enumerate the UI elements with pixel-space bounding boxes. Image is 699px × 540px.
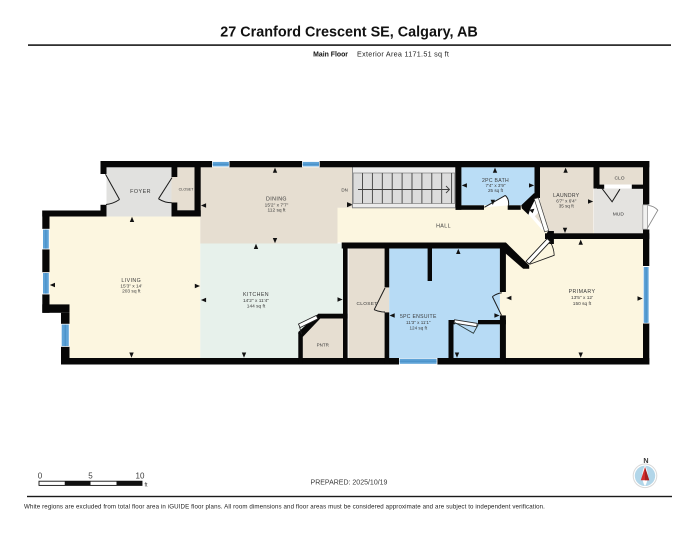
svg-text:FOYER: FOYER	[130, 189, 151, 195]
svg-text:13'5" x 12': 13'5" x 12'	[571, 295, 593, 301]
svg-text:15'2" x 7'7": 15'2" x 7'7"	[265, 202, 289, 208]
svg-text:PNTR: PNTR	[317, 343, 330, 348]
svg-text:Exterior Area 1171.51 sq ft: Exterior Area 1171.51 sq ft	[357, 49, 449, 58]
svg-text:15'3" x 14': 15'3" x 14'	[120, 283, 142, 289]
svg-text:10: 10	[136, 472, 145, 481]
svg-text:PREPARED: 2025/10/19: PREPARED: 2025/10/19	[311, 480, 388, 487]
svg-text:PRIMARY: PRIMARY	[569, 289, 596, 295]
svg-text:35 sq ft: 35 sq ft	[559, 203, 575, 208]
svg-text:DINING: DINING	[266, 197, 287, 203]
svg-text:25 sq ft: 25 sq ft	[488, 188, 504, 193]
svg-text:N: N	[643, 456, 648, 465]
svg-text:0: 0	[38, 472, 43, 481]
svg-text:124 sq ft: 124 sq ft	[409, 326, 427, 331]
svg-text:White regions are excluded fro: White regions are excluded from total fl…	[24, 504, 545, 511]
svg-text:CLOSET: CLOSET	[179, 187, 195, 191]
svg-text:144 sq ft: 144 sq ft	[247, 304, 266, 310]
svg-text:KITCHEN: KITCHEN	[243, 292, 269, 298]
svg-text:MUD: MUD	[613, 212, 625, 218]
svg-text:14'2" x 11'4": 14'2" x 11'4"	[243, 298, 269, 304]
svg-text:203 sq ft: 203 sq ft	[122, 288, 141, 294]
svg-text:5: 5	[88, 472, 93, 481]
svg-text:CLOSET: CLOSET	[357, 301, 378, 307]
svg-text:Main Floor: Main Floor	[313, 51, 348, 58]
svg-text:HALL: HALL	[436, 223, 451, 229]
svg-text:27 Cranford Crescent SE, Calga: 27 Cranford Crescent SE, Calgary, AB	[220, 25, 478, 41]
svg-text:11'3" x 11'1": 11'3" x 11'1"	[406, 320, 431, 325]
svg-text:CLO: CLO	[614, 176, 624, 182]
svg-text:LIVING: LIVING	[121, 278, 141, 284]
svg-text:DN: DN	[341, 187, 348, 192]
svg-text:150 sq ft: 150 sq ft	[573, 301, 592, 307]
svg-text:112 sq ft: 112 sq ft	[267, 208, 286, 214]
